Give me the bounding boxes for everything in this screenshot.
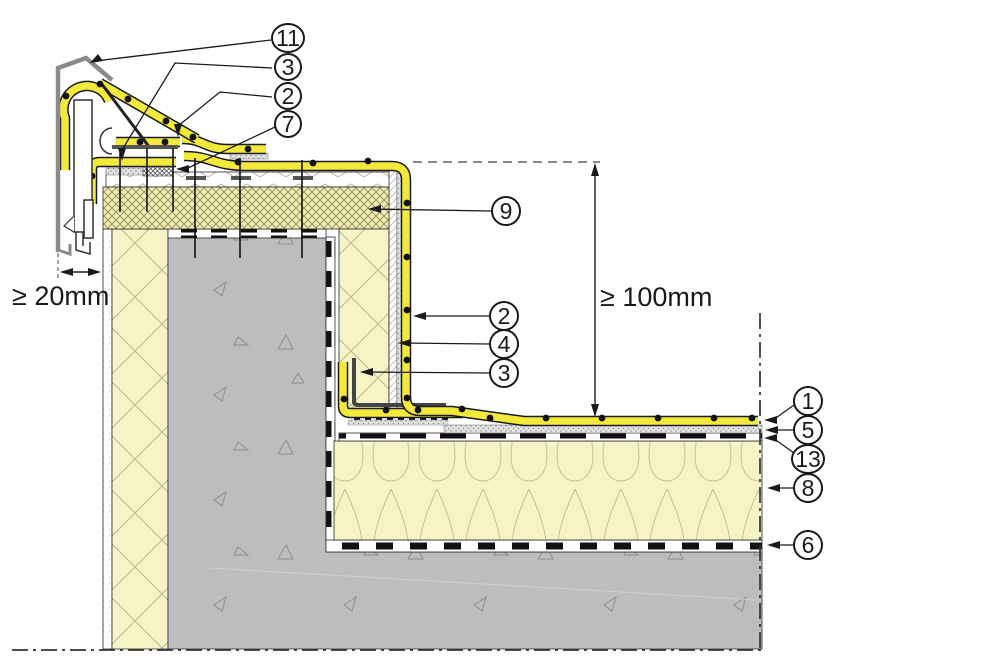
callout-8-label: 8 [802, 475, 815, 501]
wall-insulation-layer [112, 229, 168, 649]
parapet-gap-label: ≥ 20mm [12, 281, 109, 311]
callout-4: 4 [490, 330, 518, 358]
callout-11: 11 [272, 24, 304, 52]
callout-2-mid: 2 [490, 302, 518, 330]
bracket-flap [84, 200, 93, 238]
callout-6-label: 6 [802, 532, 815, 558]
construction-detail-drawing: ≥ 100mm ≥ 20mm [0, 0, 1000, 661]
callout-5: 5 [794, 416, 822, 444]
callout-3-top: 3 [275, 54, 301, 80]
callout-1-label: 1 [802, 388, 815, 414]
dimension-upstand-height: ≥ 100mm [413, 162, 712, 417]
callout-9: 9 [492, 197, 520, 225]
vapour-layer-13 [339, 433, 762, 441]
dimension-parapet-gap: ≥ 20mm [12, 253, 109, 311]
protection-layer-4 [389, 170, 397, 412]
callout-7-label: 7 [282, 111, 295, 137]
callout-1: 1 [794, 387, 822, 415]
callout-7: 7 [275, 111, 301, 137]
callout-3-bottom: 3 [490, 359, 518, 387]
callout-3-bottom-label: 3 [498, 360, 511, 386]
bracket-clip [100, 128, 112, 154]
callout-4-label: 4 [498, 331, 511, 357]
callout-2-top: 2 [275, 83, 301, 109]
callout-8: 8 [794, 474, 822, 502]
callout-2-top-label: 2 [282, 83, 295, 109]
callout-2-mid-label: 2 [498, 303, 511, 329]
callout-6: 6 [794, 531, 822, 559]
callout-5-label: 5 [802, 417, 815, 443]
parapet-insulation-9 [103, 187, 390, 229]
roof-insulation-8 [334, 441, 762, 540]
upstand-height-label: ≥ 100mm [600, 282, 712, 312]
callout-11-label: 11 [276, 25, 300, 51]
callout-13-label: 13 [795, 446, 821, 472]
callout-13: 13 [792, 445, 824, 473]
callout-3-top-label: 3 [282, 54, 295, 80]
callout-9-label: 9 [500, 198, 513, 224]
